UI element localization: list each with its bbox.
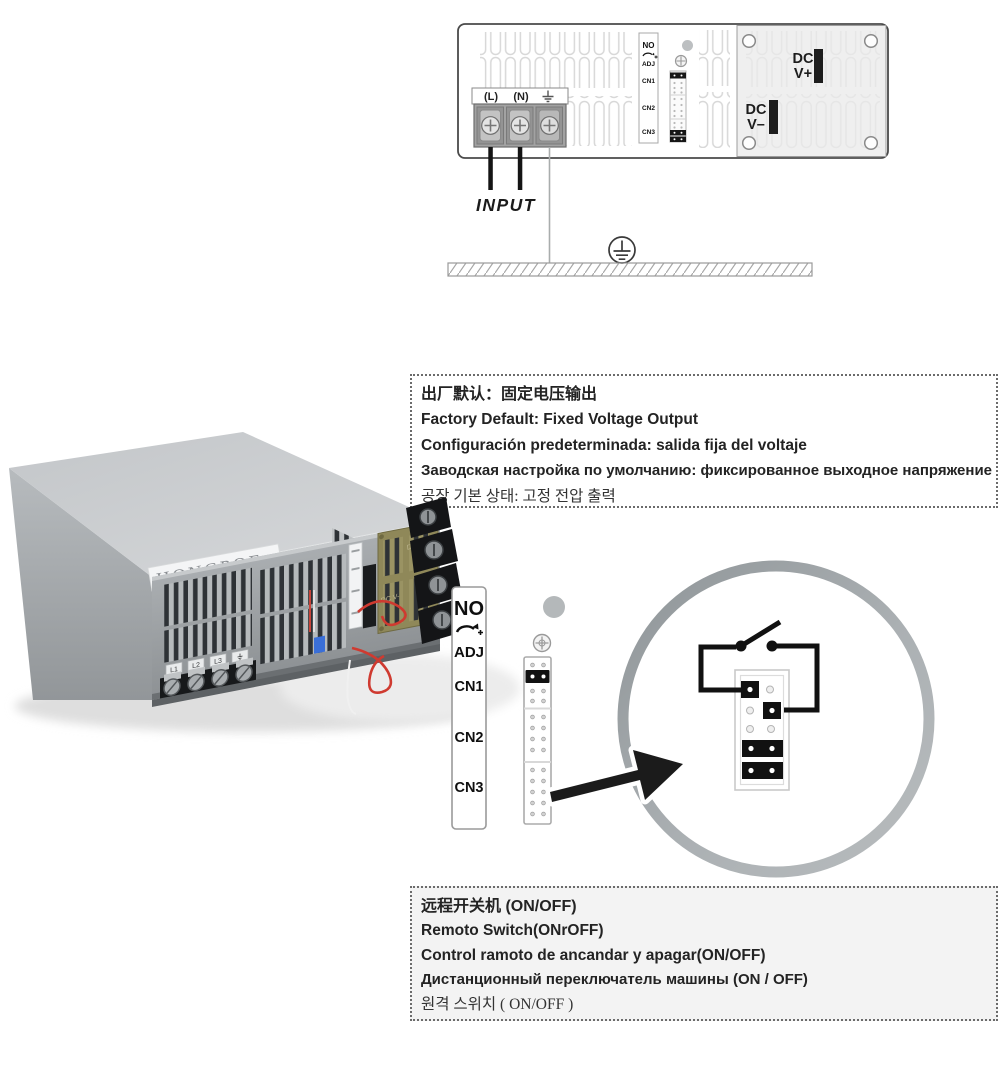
dc-output-panel: DC V+ DC V– [737, 26, 886, 157]
side-pin-header [363, 564, 376, 629]
adjust-screw-small [676, 56, 687, 67]
remote-note-zh: 远程开关机 (ON/OFF) [421, 894, 987, 918]
adj-label-small: ADJ [642, 61, 655, 68]
dc-minus-label-2: V– [747, 117, 765, 133]
dc-minus-terminal-bar [769, 100, 778, 134]
terminal-cell-l [477, 107, 504, 144]
protective-earth-icon [609, 237, 635, 263]
cn1-label-small: CN1 [642, 78, 655, 85]
input-label: INPUT [476, 195, 536, 215]
blue-component [314, 636, 325, 654]
terminal-cell-ground [536, 107, 563, 144]
dc-plus-terminal-bar [814, 49, 823, 83]
switch-contact-left [736, 641, 747, 652]
manual-page: DC V+ DC V– (L) (N) [0, 0, 1000, 1077]
signal-strip-small: NO ADJ CN1 CN2 CN3 [639, 33, 658, 143]
cn1-label: CN1 [454, 679, 483, 695]
remote-note-es: Control ramoto de ancandar y apagar(ON/O… [421, 943, 987, 967]
no-label-small: NO [643, 41, 655, 50]
side-label-strip [349, 543, 362, 630]
remote-note-en: Remoto Switch(ONrOFF) [421, 918, 987, 942]
remote-note-ko: 원격 스위치 ( ON/OFF ) [421, 992, 987, 1016]
terminal-cell-n [507, 107, 534, 144]
remote-note-ru: Дистанционный переключатель машины (ON /… [421, 967, 987, 991]
signal-strip: NO ADJ CN1 CN2 CN3 [452, 587, 486, 829]
dc-plus-label-2: V+ [794, 66, 812, 82]
neutral-label: (N) [513, 91, 529, 103]
indicator-hole [543, 596, 565, 618]
cn2-label-small: CN2 [642, 105, 655, 112]
indicator-hole-small [682, 40, 693, 51]
cn3-label-small: CN3 [642, 129, 655, 136]
no-label: NO [454, 598, 484, 620]
adjust-screw [534, 635, 551, 652]
earth-bar [448, 263, 812, 276]
pin-header-small [670, 71, 686, 142]
ac-terminal-block [474, 104, 566, 147]
switch-contact-right [767, 641, 778, 652]
ac-terminal-label-strip: (L) (N) [472, 88, 568, 104]
cn3-label: CN3 [454, 780, 483, 796]
remote-switch-note: 远程开关机 (ON/OFF) Remoto Switch(ONrOFF) Con… [410, 886, 998, 1021]
remote-switch-diagram: NO ADJ CN1 CN2 CN3 [420, 555, 1000, 895]
rear-panel-wiring-diagram: DC V+ DC V– (L) (N) [0, 0, 1000, 300]
dc-minus-label: DC [746, 102, 767, 118]
magnified-connector [701, 622, 817, 790]
adj-label: ADJ [454, 644, 484, 661]
factory-note-zh: 出厂默认：固定电压输出 [421, 382, 987, 407]
dc-plus-label: DC [793, 51, 814, 67]
cn2-label: CN2 [454, 730, 483, 746]
jumper-cap [526, 670, 550, 683]
live-label: (L) [484, 91, 498, 103]
